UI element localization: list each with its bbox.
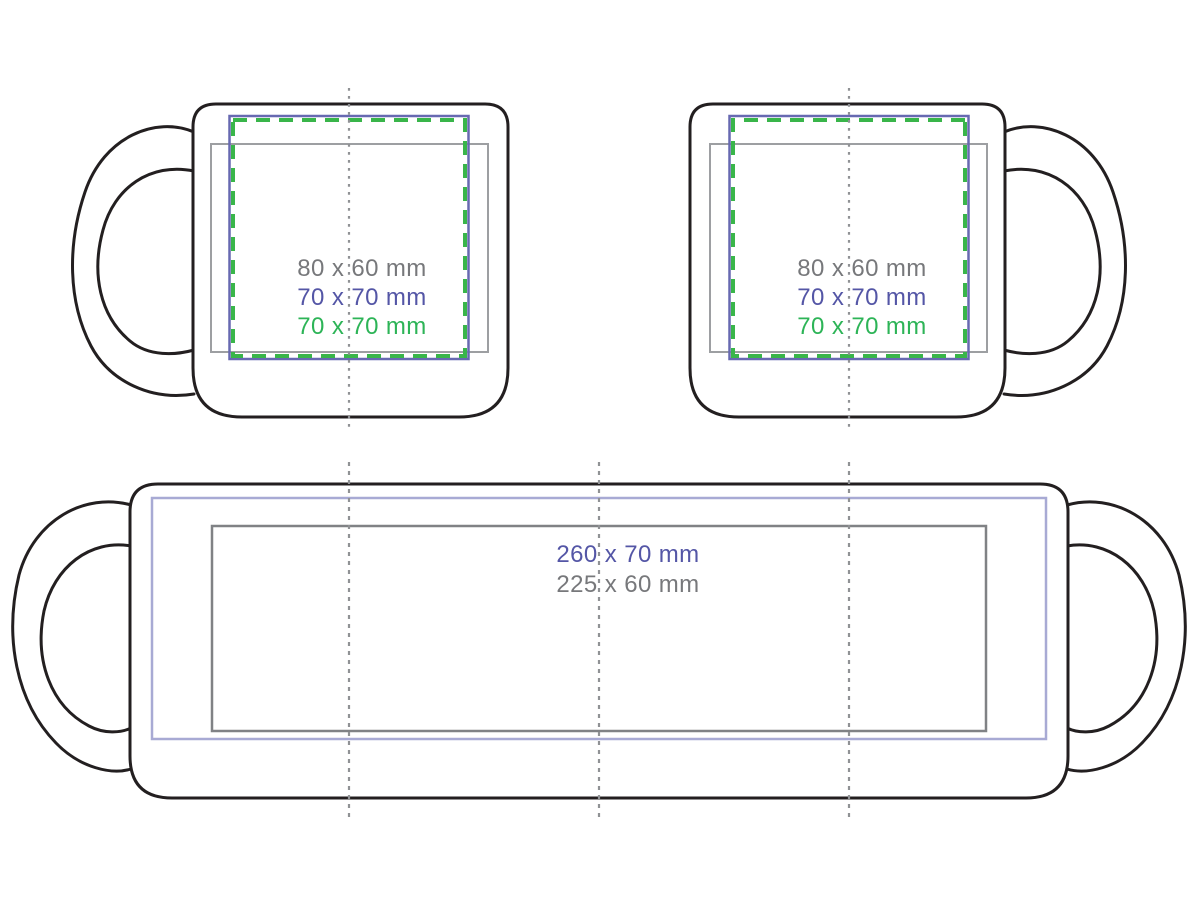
mug-handle-hole	[1004, 169, 1100, 353]
label-225x60: 225 x 60 mm	[556, 571, 699, 598]
label-80x60: 80 x 60 mm	[297, 255, 426, 282]
label-260x70: 260 x 70 mm	[556, 541, 699, 568]
mug-handle-hole	[41, 545, 131, 732]
mug-handle-outer	[1004, 127, 1125, 396]
side-view-right-labels: 80 x 60 mm 70 x 70 mm 70 x 70 mm	[797, 255, 926, 340]
side-view-left: 80 x 60 mm 70 x 70 mm 70 x 70 mm	[73, 104, 508, 417]
label-70x70-green: 70 x 70 mm	[297, 313, 426, 340]
mug-handle-outer	[73, 127, 194, 396]
label-70x70-purple: 70 x 70 mm	[297, 284, 426, 311]
wrap-right-handle	[1067, 502, 1185, 771]
label-80x60: 80 x 60 mm	[797, 255, 926, 282]
label-70x70-green: 70 x 70 mm	[797, 313, 926, 340]
mug-handle-hole	[98, 169, 194, 353]
label-70x70-purple: 70 x 70 mm	[797, 284, 926, 311]
mug-handle-hole	[1067, 545, 1157, 732]
mug-print-template-canvas: 80 x 60 mm 70 x 70 mm 70 x 70 mm 80 x 60…	[0, 0, 1200, 900]
mug-print-template: 80 x 60 mm 70 x 70 mm 70 x 70 mm 80 x 60…	[0, 0, 1200, 900]
